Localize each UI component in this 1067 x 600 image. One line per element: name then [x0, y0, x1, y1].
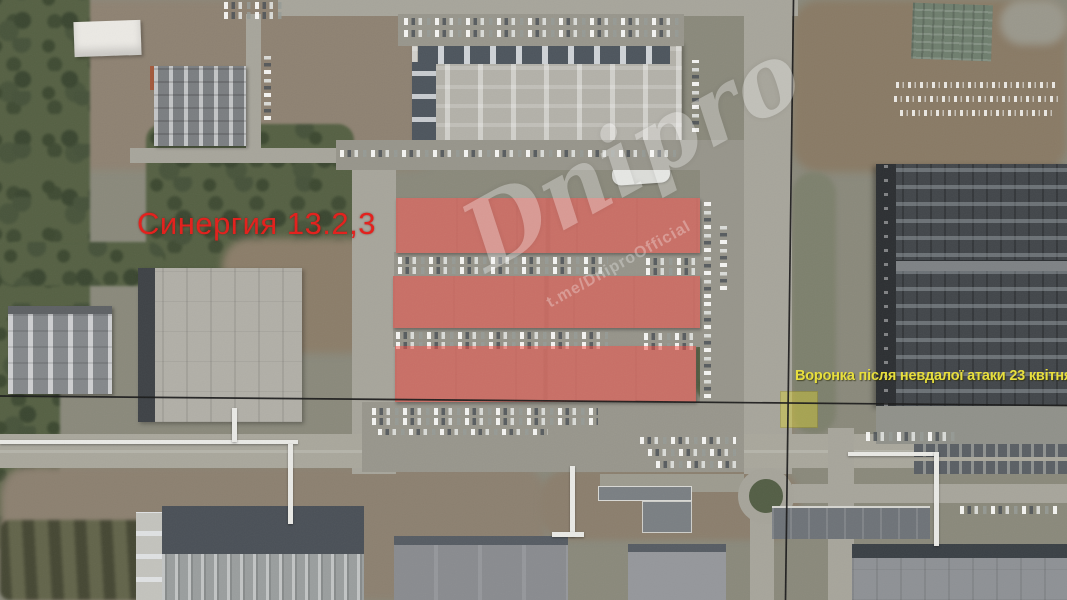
pipeline-segment	[570, 466, 575, 536]
parked-cars-row	[960, 506, 1058, 514]
highlight-building-3	[395, 346, 696, 402]
structure-small-b	[642, 501, 692, 533]
facility-label: Синергия 13.2,3	[137, 206, 376, 242]
parked-cars-row	[372, 408, 598, 415]
parked-cars-row	[648, 449, 736, 456]
white-hangar	[73, 20, 141, 57]
construction-materials-row	[894, 96, 1060, 102]
parked-cars-row	[656, 461, 736, 468]
parked-cars-row	[224, 2, 282, 9]
parked-cars-row	[646, 268, 698, 275]
parked-cars-row	[866, 432, 956, 441]
structure-small-a	[598, 486, 692, 501]
warehouse-bottom4	[852, 558, 1067, 600]
warehouse-bottom1-roof	[162, 506, 364, 554]
warehouse-bottom3	[628, 544, 726, 600]
building-under-construction	[911, 3, 993, 62]
structure-row-right	[772, 506, 930, 539]
road-roundabout-south	[750, 518, 774, 600]
warehouse-right-seam	[896, 260, 1067, 271]
crater-highlight-box	[780, 391, 818, 428]
construction-materials-row	[900, 110, 1054, 116]
road-topleft-vertical	[246, 14, 261, 154]
parked-cars-row	[224, 12, 282, 19]
parked-cars-column	[704, 302, 711, 398]
parked-cars-column	[704, 202, 711, 298]
parked-cars-row	[396, 332, 608, 339]
parked-cars-row	[372, 418, 598, 425]
warehouse-bottom1-dock	[136, 512, 162, 600]
parked-cars-row	[640, 437, 736, 444]
loading-dock-left	[412, 62, 436, 140]
pipeline-segment	[232, 408, 237, 442]
parked-cars-column	[264, 56, 271, 120]
warehouse-midleft-ribbed	[138, 268, 302, 422]
satellite-image: Dnipro t.me/DniproOfficial Синергия 13.2…	[0, 0, 1067, 600]
pipeline-segment	[552, 532, 584, 537]
building-midleft-vented	[8, 306, 112, 394]
terrain-gray-corner	[1000, 0, 1067, 45]
loading-dock-top	[418, 46, 670, 64]
parked-cars-column	[720, 226, 727, 290]
warehouse-midleft-dark-edge	[138, 268, 155, 422]
construction-materials-row	[896, 82, 1058, 88]
pipeline-segment	[0, 440, 298, 444]
parked-cars-row	[378, 429, 548, 435]
parked-cars-row	[646, 258, 698, 265]
pipeline-segment	[288, 444, 293, 524]
pipeline-segment	[934, 452, 939, 546]
pipeline-segment	[848, 452, 938, 456]
parked-cars-row	[644, 333, 698, 340]
parked-cars-row	[404, 18, 680, 25]
parked-cars-row	[404, 30, 680, 37]
warehouse-bottom2	[394, 536, 568, 600]
building-topleft-dark	[154, 66, 246, 146]
crater-label: Воронка після невдалої атаки 23 квітня	[795, 368, 1067, 384]
warehouse-bottom4-edge	[852, 544, 1067, 558]
warehouse-bottom1-ribbed	[162, 554, 364, 600]
